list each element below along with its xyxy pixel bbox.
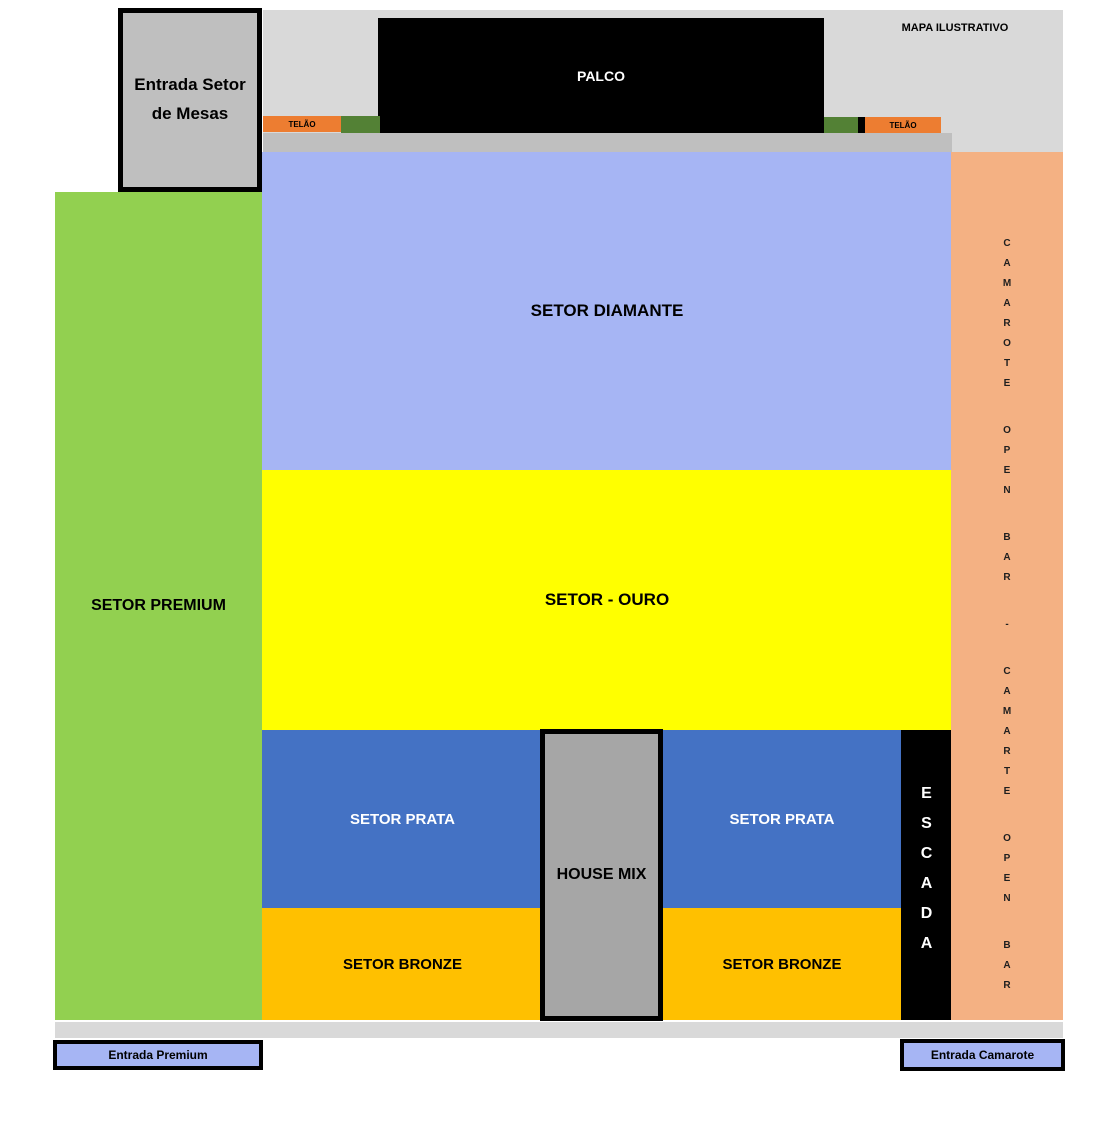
screen-telao-left: TELÃO — [263, 116, 341, 132]
sector-diamante: SETOR DIAMANTE — [262, 152, 952, 470]
sector-ouro: SETOR - OURO — [262, 470, 952, 730]
map-title: MAPA ILUSTRATIVO — [880, 22, 1030, 34]
entrance-mesas-line2: de Mesas — [152, 100, 229, 129]
stage-edge-sliver — [858, 117, 865, 133]
house-mix-booth: HOUSE MIX — [540, 729, 663, 1021]
screen-green-left — [341, 116, 380, 133]
entrance-premium: Entrada Premium — [53, 1040, 263, 1070]
stage-apron-strip — [263, 133, 952, 152]
entrance-mesas-line1: Entrada Setor — [134, 71, 245, 100]
sector-prata-right: SETOR PRATA — [663, 730, 901, 908]
stairs-escada: ESCADA — [901, 730, 951, 1020]
sector-bronze-right: SETOR BRONZE — [663, 908, 901, 1020]
stage-palco: PALCO — [378, 18, 824, 133]
screen-telao-right: TELÃO — [865, 117, 941, 133]
entrance-camarote: Entrada Camarote — [900, 1039, 1065, 1071]
bottom-walkway-strip — [55, 1022, 1063, 1038]
sector-premium: SETOR PREMIUM — [55, 192, 262, 1020]
screen-green-right — [824, 117, 858, 133]
camarote-open-bar-strip: CAMAROTE OPEN BAR - CAMARTE OPEN BAR — [951, 152, 1063, 1020]
entrance-setor-de-mesas: Entrada Setor de Mesas — [118, 8, 262, 192]
venue-map: MAPA ILUSTRATIVO PALCO TELÃO TELÃO Entra… — [0, 0, 1116, 1146]
sector-bronze-left: SETOR BRONZE — [262, 908, 543, 1020]
sector-prata-left: SETOR PRATA — [262, 730, 543, 908]
